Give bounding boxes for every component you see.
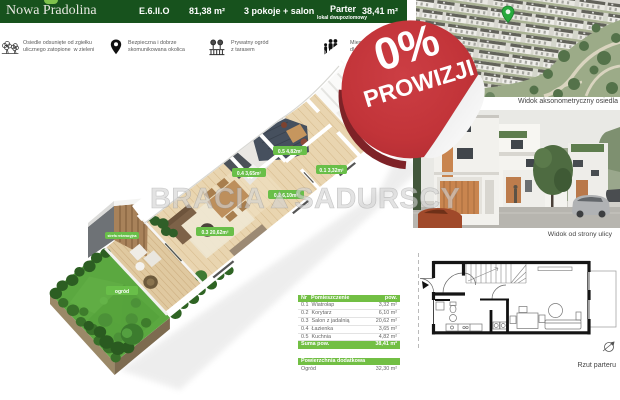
svg-text:0.5 4,82m²: 0.5 4,82m²	[278, 149, 303, 155]
svg-text:strefa rekreacyjna: strefa rekreacyjna	[107, 234, 136, 238]
svg-text:0.4 3,65m²: 0.4 3,65m²	[237, 171, 262, 177]
svg-text:0.3 20,62m²: 0.3 20,62m²	[202, 230, 229, 236]
svg-text:ogród: ogród	[115, 289, 129, 295]
